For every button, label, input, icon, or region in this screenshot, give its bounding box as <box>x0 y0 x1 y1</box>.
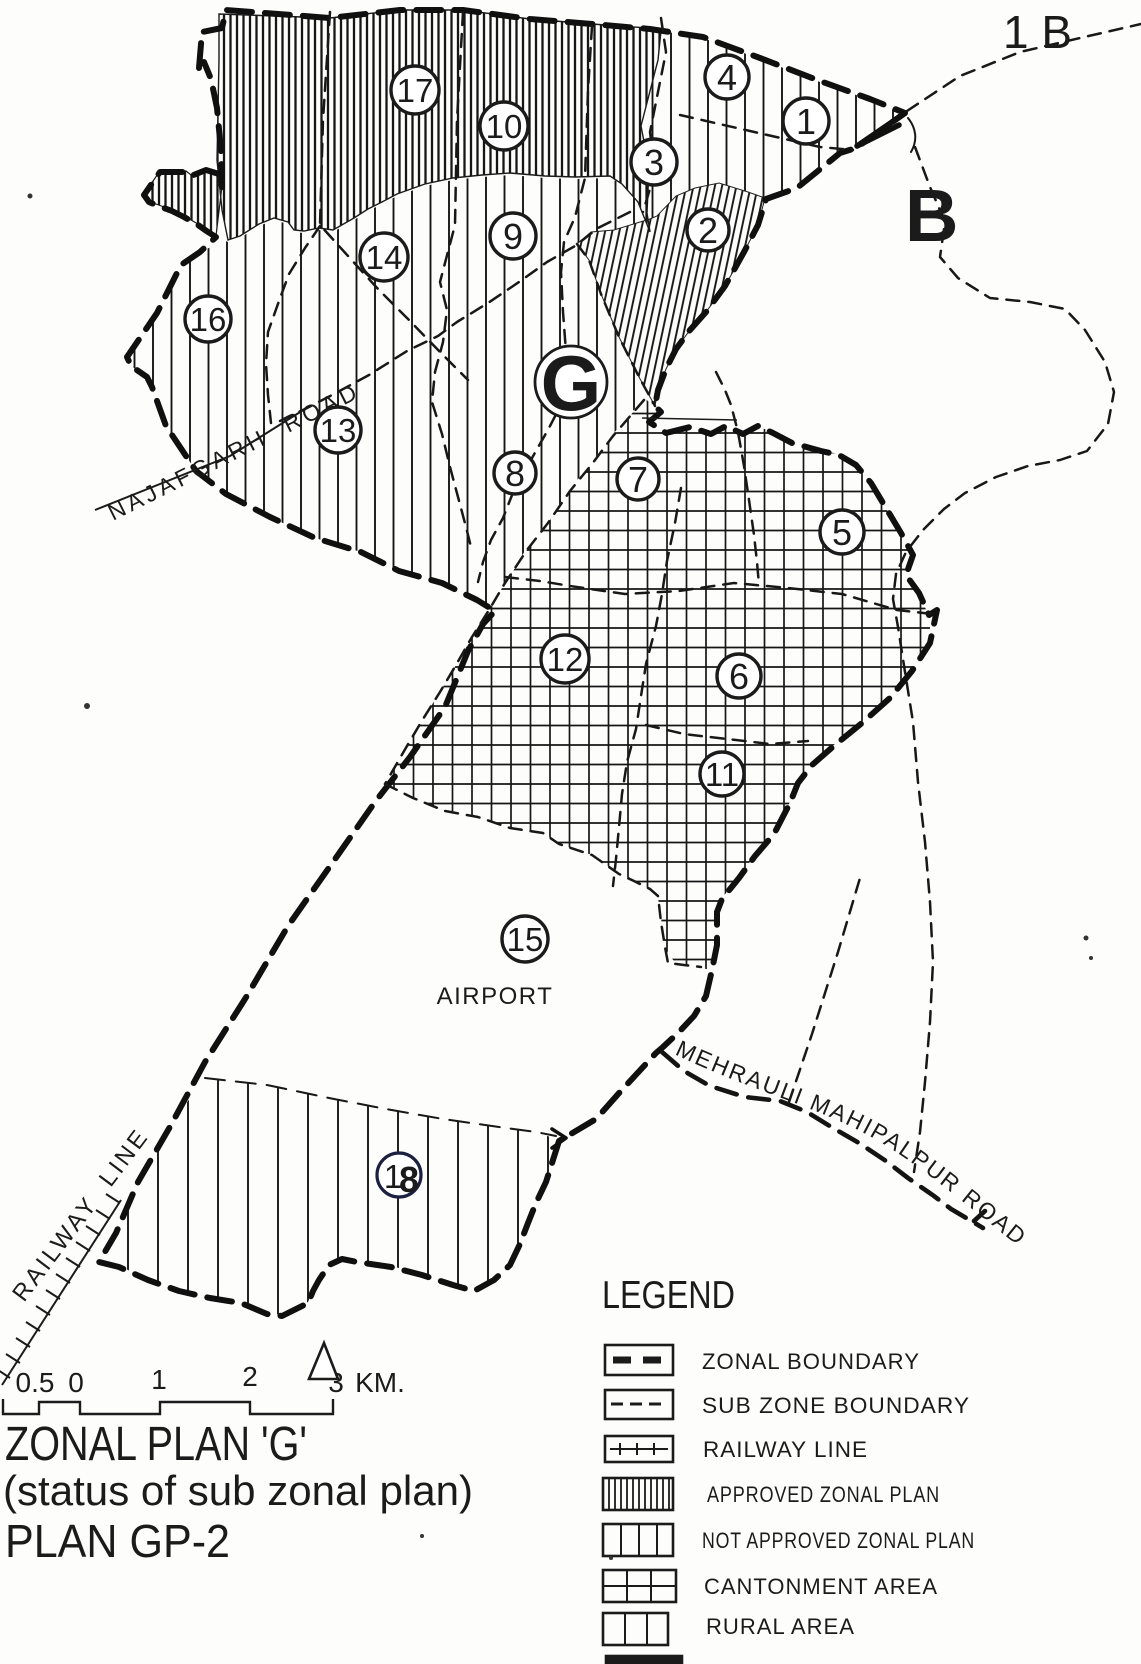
svg-text:0: 0 <box>68 1367 84 1398</box>
svg-text:8: 8 <box>505 453 525 494</box>
svg-text:AIRPORT: AIRPORT <box>437 983 554 1010</box>
svg-text:5: 5 <box>832 512 852 553</box>
svg-text:16: 16 <box>190 301 227 338</box>
svg-text:G: G <box>541 339 602 427</box>
svg-text:0.5: 0.5 <box>16 1367 55 1398</box>
svg-text:14: 14 <box>366 239 403 276</box>
svg-text:17: 17 <box>397 72 434 109</box>
svg-text:KM.: KM. <box>355 1367 405 1398</box>
svg-text:3: 3 <box>644 142 664 183</box>
svg-text:ZONAL BOUNDARY: ZONAL BOUNDARY <box>702 1349 920 1374</box>
svg-text:2: 2 <box>698 210 718 251</box>
svg-text:10: 10 <box>486 108 523 145</box>
svg-text:12: 12 <box>547 641 584 678</box>
svg-text:1: 1 <box>796 101 816 142</box>
svg-text:4: 4 <box>717 57 737 98</box>
svg-text:1: 1 <box>151 1364 167 1395</box>
svg-text:LEGEND: LEGEND <box>602 1274 735 1317</box>
svg-text:1 B: 1 B <box>1003 6 1072 58</box>
svg-text:PLAN GP-2: PLAN GP-2 <box>5 1515 230 1567</box>
svg-text:B: B <box>905 174 958 257</box>
svg-text:7: 7 <box>628 459 648 500</box>
svg-text:2: 2 <box>242 1361 258 1392</box>
svg-text:11: 11 <box>705 756 739 793</box>
svg-text:8: 8 <box>399 1159 419 1200</box>
svg-text:CANTONMENT AREA: CANTONMENT AREA <box>704 1574 938 1599</box>
svg-text:SUB ZONE BOUNDARY: SUB ZONE BOUNDARY <box>702 1393 970 1418</box>
svg-text:APPROVED ZONAL PLAN: APPROVED ZONAL PLAN <box>707 1482 940 1507</box>
svg-text:15: 15 <box>507 921 544 958</box>
svg-text:NOT APPROVED ZONAL PLAN: NOT APPROVED ZONAL PLAN <box>702 1528 975 1553</box>
svg-text:6: 6 <box>729 656 749 697</box>
svg-text:RURAL AREA: RURAL AREA <box>706 1614 855 1639</box>
svg-text:9: 9 <box>503 216 523 257</box>
svg-text:13: 13 <box>320 412 357 449</box>
svg-text:RAILWAY LINE: RAILWAY LINE <box>703 1437 868 1462</box>
svg-text:ZONAL PLAN 'G': ZONAL PLAN 'G' <box>5 1418 307 1471</box>
svg-text:(status of sub zonal plan): (status of sub zonal plan) <box>3 1467 473 1514</box>
